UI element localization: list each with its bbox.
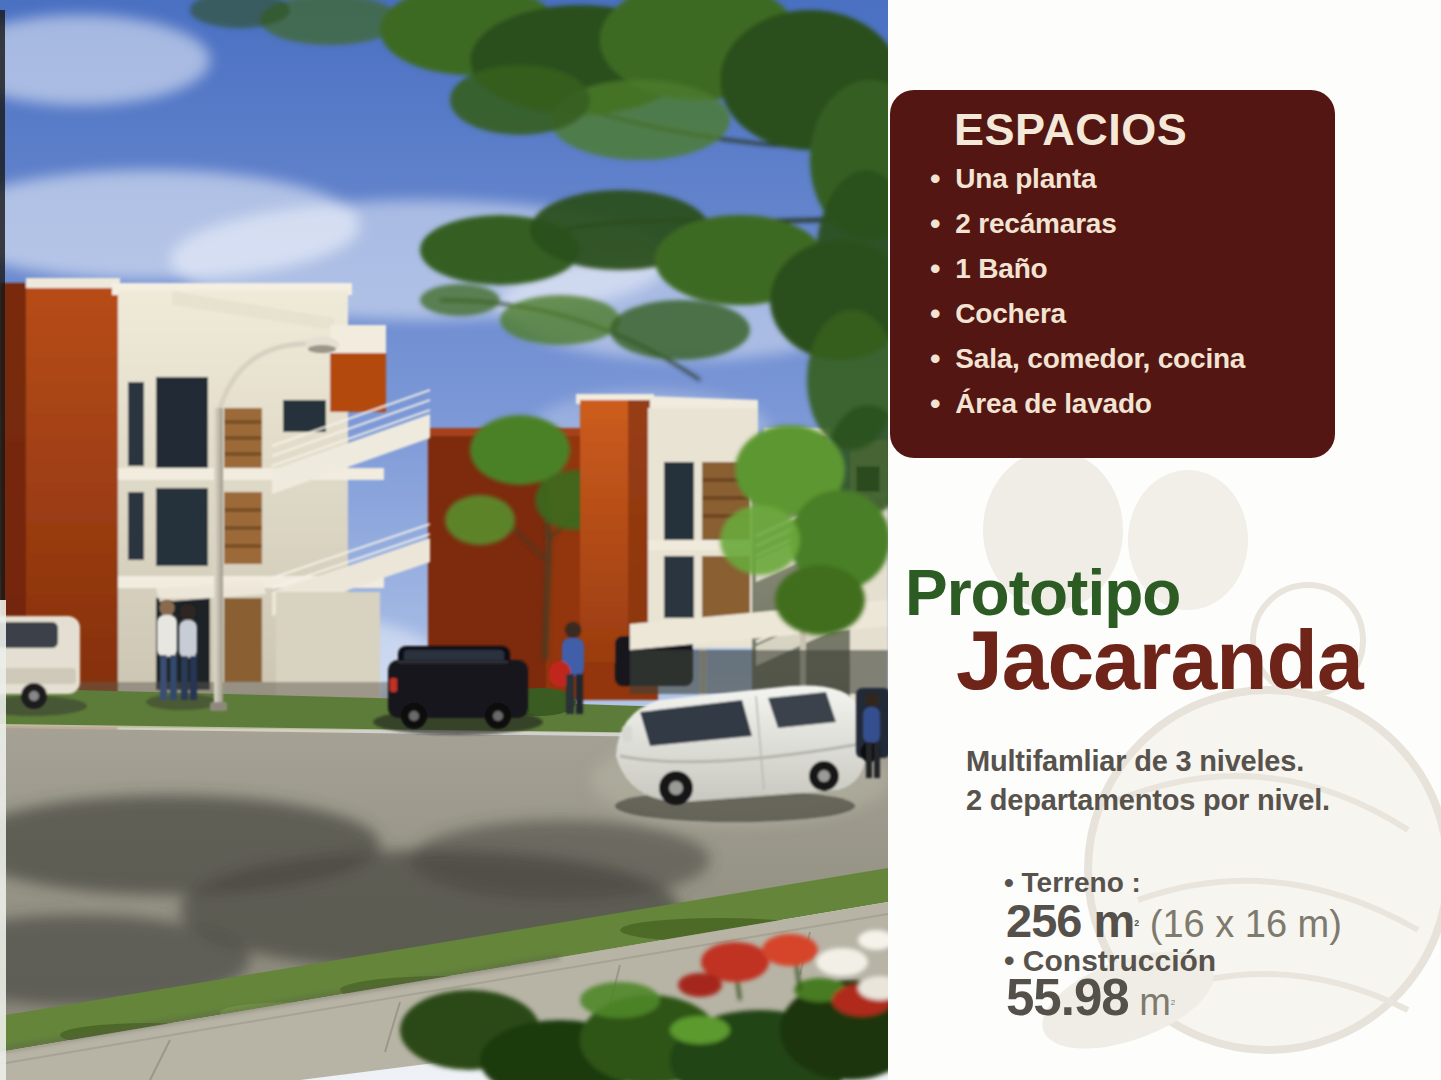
prototype-description: Multifamliar de 3 niveles. 2 departament… xyxy=(966,742,1330,820)
espacios-item-label: Área de lavado xyxy=(955,388,1151,420)
construccion-unit-sup: 2 xyxy=(1171,998,1175,1007)
development-rendering-photo xyxy=(0,0,888,1080)
espacios-item-label: 1 Baño xyxy=(955,253,1047,285)
construccion-unit: m xyxy=(1129,981,1171,1023)
espacios-box: ESPACIOS • Una planta • 2 recámaras • 1 … xyxy=(890,90,1335,458)
flyer: ESPACIOS • Una planta • 2 recámaras • 1 … xyxy=(0,0,1441,1080)
white-hatchback-car xyxy=(615,685,866,822)
construccion-area: 55.98 xyxy=(1006,969,1129,1026)
bullet-icon: • xyxy=(930,164,940,194)
prototype-name: Jacaranda xyxy=(956,612,1363,709)
terreno-dimensions: (16 x 16 m) xyxy=(1139,903,1342,945)
espacios-list: • Una planta • 2 recámaras • 1 Baño • Co… xyxy=(930,156,1245,426)
espacios-item-label: 2 recámaras xyxy=(955,208,1116,240)
espacios-item: • Área de lavado xyxy=(930,381,1245,426)
bullet-icon: • xyxy=(930,299,940,329)
terreno-area: 256 m xyxy=(1006,894,1134,947)
info-panel: ESPACIOS • Una planta • 2 recámaras • 1 … xyxy=(888,0,1441,1080)
description-line2: 2 departamentos por nivel. xyxy=(966,784,1330,816)
espacios-item-label: Una planta xyxy=(955,163,1096,195)
espacios-item: • Una planta xyxy=(930,156,1245,201)
bullet-icon: • xyxy=(930,344,940,374)
description-line1: Multifamliar de 3 niveles. xyxy=(966,745,1304,777)
espacios-item-label: Cochera xyxy=(955,298,1066,330)
espacios-item: • 2 recámaras xyxy=(930,201,1245,246)
bullet-icon: • xyxy=(930,209,940,239)
terreno-area-sup: 2 xyxy=(1134,918,1139,928)
espacios-item: • Sala, comedor, cocina xyxy=(930,336,1245,381)
espacios-item: • 1 Baño xyxy=(930,246,1245,291)
espacios-item-label: Sala, comedor, cocina xyxy=(955,343,1245,375)
construccion-value: 55.98 m2 xyxy=(1006,968,1175,1027)
bullet-icon: • xyxy=(930,389,940,419)
terreno-value: 256 m2 (16 x 16 m) xyxy=(1006,893,1342,948)
parked-car-left xyxy=(0,616,87,716)
bullet-icon: • xyxy=(930,254,940,284)
espacios-item: • Cochera xyxy=(930,291,1245,336)
espacios-title: ESPACIOS xyxy=(954,104,1187,156)
